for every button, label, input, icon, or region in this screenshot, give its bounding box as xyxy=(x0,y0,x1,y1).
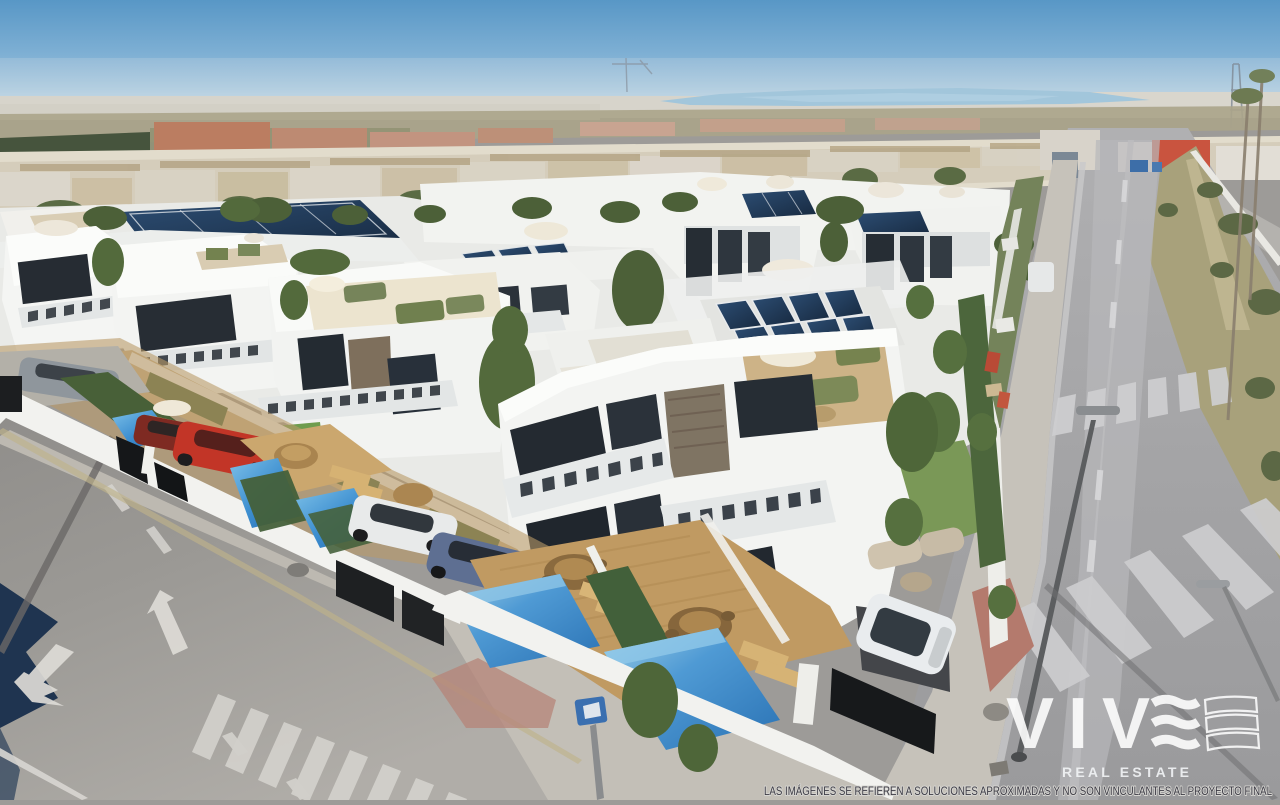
svg-text:REAL ESTATE: REAL ESTATE xyxy=(1062,764,1194,780)
svg-text:VIV: VIV xyxy=(1006,684,1150,764)
svg-text:LAS IMÁGENES SE REFIEREN A SOL: LAS IMÁGENES SE REFIEREN A SOLUCIONES AP… xyxy=(764,783,1272,798)
